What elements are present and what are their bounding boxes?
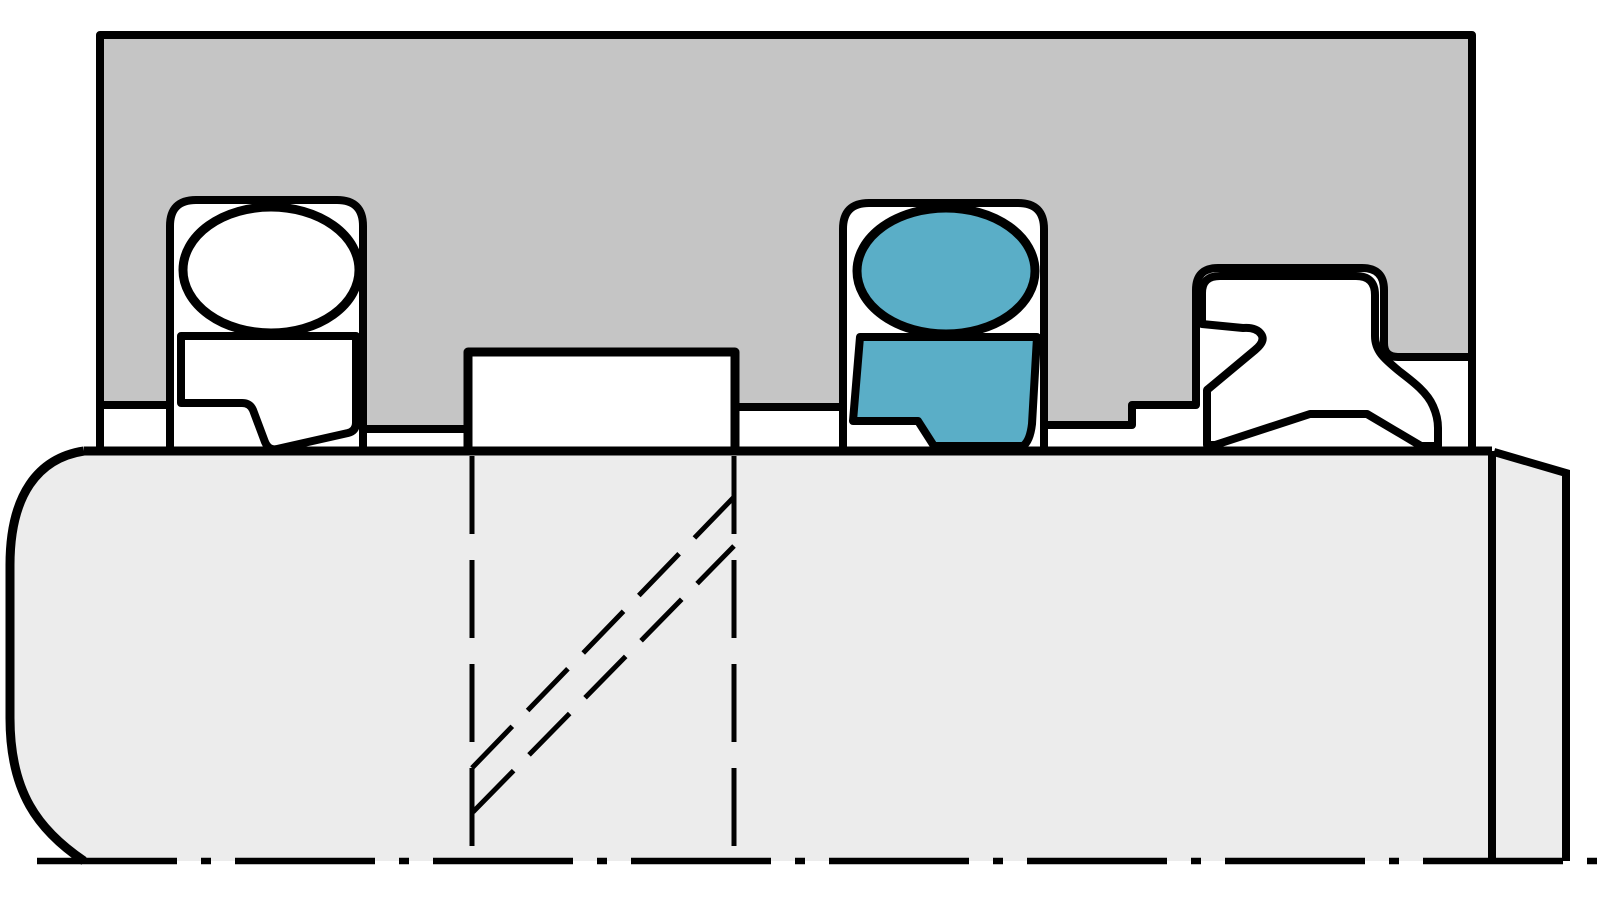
shaft-body xyxy=(10,451,1566,861)
technical-diagram xyxy=(0,0,1600,900)
left-oring-energizer xyxy=(183,207,359,333)
guide-ring-block xyxy=(468,352,735,451)
seal-cross-section-svg xyxy=(0,0,1600,900)
shaft-group xyxy=(10,451,1566,861)
center-oring-energizer xyxy=(857,208,1035,334)
